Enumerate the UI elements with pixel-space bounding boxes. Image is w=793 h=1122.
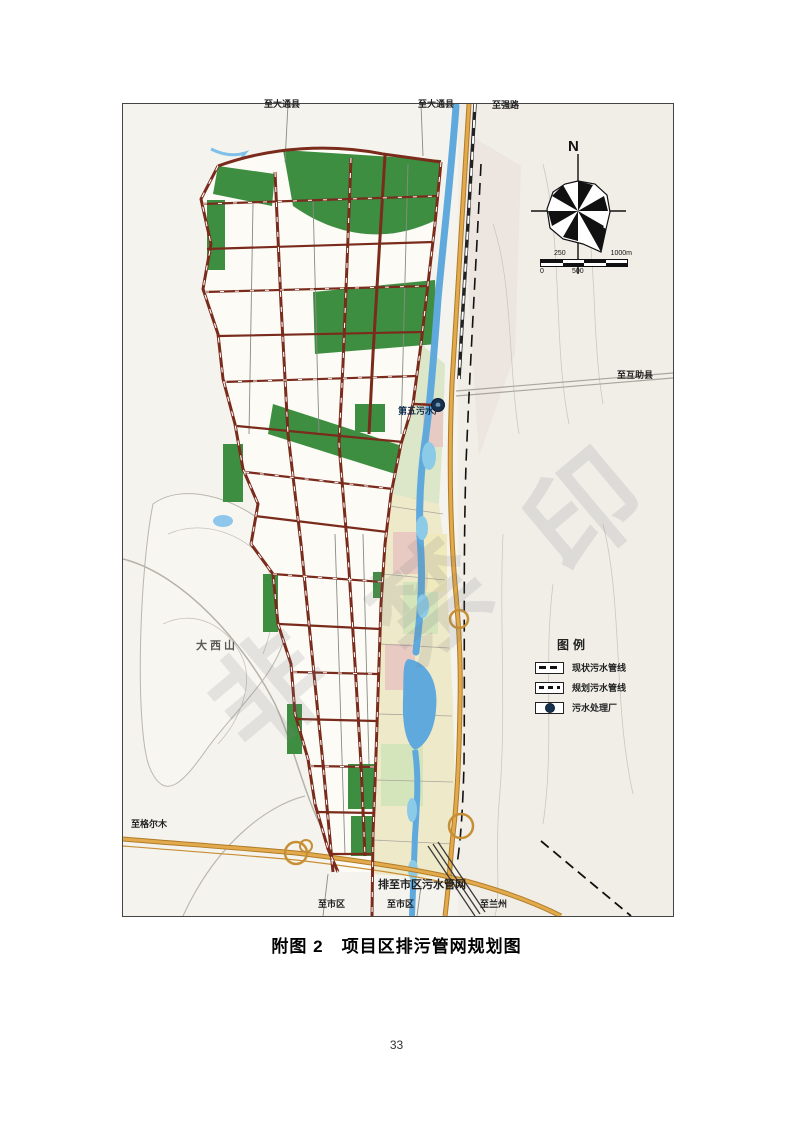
scale-label-0: 0: [540, 268, 544, 275]
compass-north-label: N: [568, 138, 579, 155]
legend-item-label: 现状污水管线: [572, 661, 626, 674]
legend-item-treatment-plant: 污水处理厂: [535, 701, 671, 714]
road-label-to-geermu: 至格尔木: [131, 820, 167, 829]
plant-label: 第五污水厂: [398, 407, 443, 416]
treatment-plant-symbol: [535, 702, 564, 714]
existing-pipeline-symbol: [535, 662, 564, 674]
page-number: 33: [0, 1038, 793, 1052]
map-frame: 非 禁 印: [122, 103, 674, 917]
scale-label-1000m: 1000m: [611, 250, 632, 257]
legend-item-existing-pipeline: 现状污水管线: [535, 661, 671, 674]
planning-map-graphic: [123, 104, 673, 916]
road-label-to-city-1: 至市区: [318, 900, 345, 909]
planned-pipeline-symbol: [535, 682, 564, 694]
legend: 图例 现状污水管线 规划污水管线 污水处理厂: [535, 636, 671, 721]
road-label-to-datong-west: 至大通县: [264, 100, 300, 109]
mountain-label: 大西山: [196, 641, 238, 652]
scale-bar: 250 1000m 0 500: [540, 250, 632, 276]
legend-item-label: 规划污水管线: [572, 681, 626, 694]
scale-bar-graphic: [540, 259, 628, 267]
document-page: 非 禁 印 至大通县 至大通县 至强路 至互助县 第五污水厂 大西山 至格尔木 …: [0, 0, 793, 1122]
road-label-to-huzhu: 至互助县: [617, 371, 653, 380]
road-label-to-city-2: 至市区: [387, 900, 414, 909]
scale-label-500: 500: [572, 268, 584, 275]
figure-caption: 附图 2 项目区排污管网规划图: [0, 932, 793, 957]
road-label-to-lanzhou: 至兰州: [480, 900, 507, 909]
road-label-to-qianglu: 至强路: [492, 101, 519, 110]
road-label-to-datong-east: 至大通县: [418, 100, 454, 109]
legend-item-label: 污水处理厂: [572, 701, 617, 714]
legend-title: 图例: [557, 636, 671, 653]
pond: [213, 515, 233, 527]
legend-item-planned-pipeline: 规划污水管线: [535, 681, 671, 694]
scale-label-250: 250: [554, 250, 566, 257]
outfall-label: 排至市区污水管网: [378, 880, 466, 891]
